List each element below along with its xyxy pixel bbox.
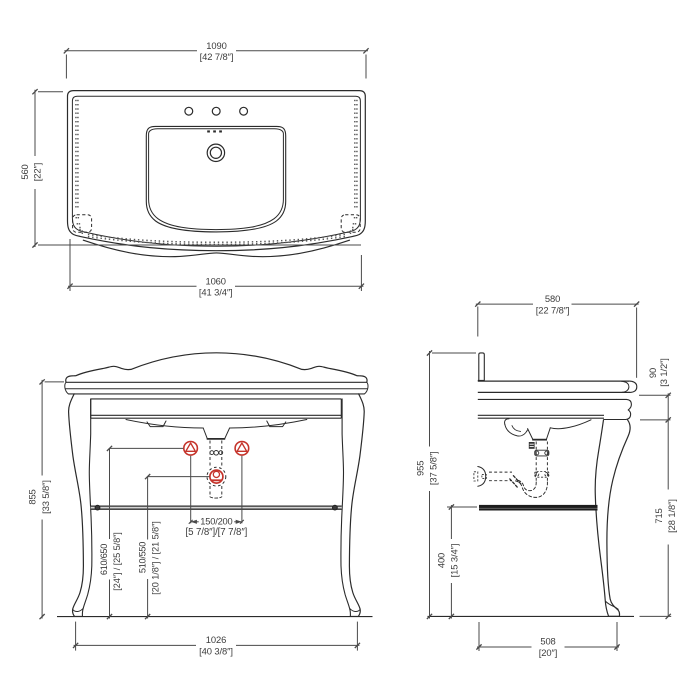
svg-text:150/200: 150/200 — [200, 517, 232, 527]
svg-text:[22 7/8″]: [22 7/8″] — [536, 305, 570, 316]
svg-text:[37 5/8″]: [37 5/8″] — [428, 451, 439, 485]
svg-text:715: 715 — [653, 508, 664, 523]
svg-text:[22″]: [22″] — [32, 163, 43, 181]
svg-text:610/650: 610/650 — [99, 544, 109, 575]
svg-text:[41 3/4″]: [41 3/4″] — [199, 287, 233, 298]
svg-text:855: 855 — [26, 489, 37, 504]
svg-text:[42 7/8″]: [42 7/8″] — [200, 51, 234, 62]
svg-text:[5 7/8″]/[7 7/8″]: [5 7/8″]/[7 7/8″] — [186, 527, 248, 538]
svg-text:[3 1/2″]: [3 1/2″] — [658, 358, 669, 387]
svg-text:560: 560 — [19, 164, 30, 179]
svg-text:[40 3/8″]: [40 3/8″] — [199, 646, 233, 657]
svg-text:1060: 1060 — [205, 275, 225, 286]
svg-text:[15 3/4″]: [15 3/4″] — [449, 544, 460, 578]
svg-text:[20 1/8″] / [21 5/8″]: [20 1/8″] / [21 5/8″] — [150, 521, 160, 594]
svg-text:1090: 1090 — [206, 40, 226, 51]
svg-text:[28 1/8″]: [28 1/8″] — [666, 499, 677, 533]
svg-text:508: 508 — [540, 635, 555, 646]
svg-text:400: 400 — [436, 553, 447, 568]
svg-text:[33 5/8″]: [33 5/8″] — [40, 480, 51, 514]
svg-text:[24″] / [25 5/8″]: [24″] / [25 5/8″] — [112, 532, 122, 590]
svg-text:90: 90 — [647, 368, 658, 378]
svg-text:580: 580 — [545, 293, 560, 304]
svg-text:[20″]: [20″] — [539, 647, 557, 658]
svg-text:955: 955 — [414, 461, 425, 476]
svg-text:510/550: 510/550 — [138, 542, 148, 573]
svg-text:1026: 1026 — [206, 634, 226, 645]
